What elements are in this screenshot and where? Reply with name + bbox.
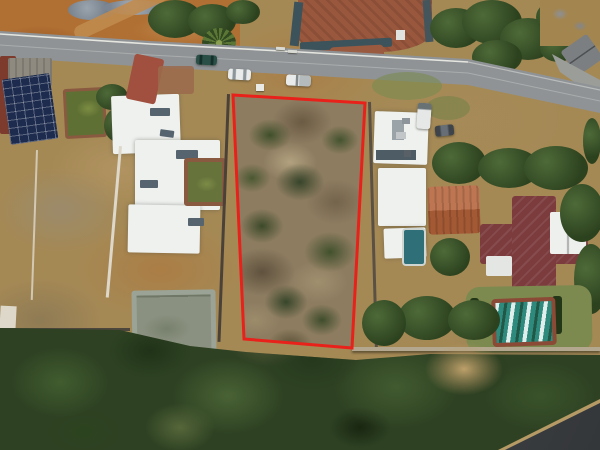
aerial-photo (0, 0, 600, 450)
tree-canopy (560, 184, 600, 242)
dark-car (434, 124, 454, 137)
dry-grass-patch (418, 338, 510, 400)
tree-canopy (472, 40, 522, 74)
white-van (416, 103, 432, 130)
white-bakkie (286, 74, 312, 86)
rooftop-unit (404, 150, 411, 157)
boundary-wall (217, 94, 230, 342)
rooftop-unit (402, 118, 410, 124)
tree-canopy (362, 300, 406, 346)
white-sedan (228, 68, 252, 80)
grass-verge (426, 96, 470, 120)
white-mansion-roof (128, 204, 201, 253)
solar-panel-array (2, 73, 59, 145)
tree-canopy (583, 118, 600, 164)
dark-teal-sedan (196, 54, 217, 65)
covered-pool (491, 297, 557, 347)
paved-ramp (158, 66, 194, 94)
roof-accent (150, 108, 170, 116)
orange-tile-roof-house (427, 185, 481, 235)
rooftop-unit (396, 132, 406, 139)
small-teal-pool (402, 228, 426, 266)
roof-accent (188, 218, 204, 226)
boundary-wall (106, 146, 122, 298)
road-marking (276, 47, 285, 50)
palm-tree (202, 28, 236, 58)
gate-pillar (396, 30, 405, 40)
roof-accent (140, 180, 158, 188)
grass-verge (372, 72, 442, 100)
white-house-east-roof (378, 168, 426, 226)
tree-canopy (226, 0, 260, 24)
road-marking (288, 50, 297, 53)
tree-canopy (448, 300, 500, 340)
boundary-wall (31, 150, 38, 300)
white-gable-wing (486, 256, 512, 276)
sign-board (256, 84, 264, 91)
mansion-pool (184, 158, 226, 206)
driveway-apron (330, 45, 385, 64)
tree-canopy (430, 238, 470, 276)
